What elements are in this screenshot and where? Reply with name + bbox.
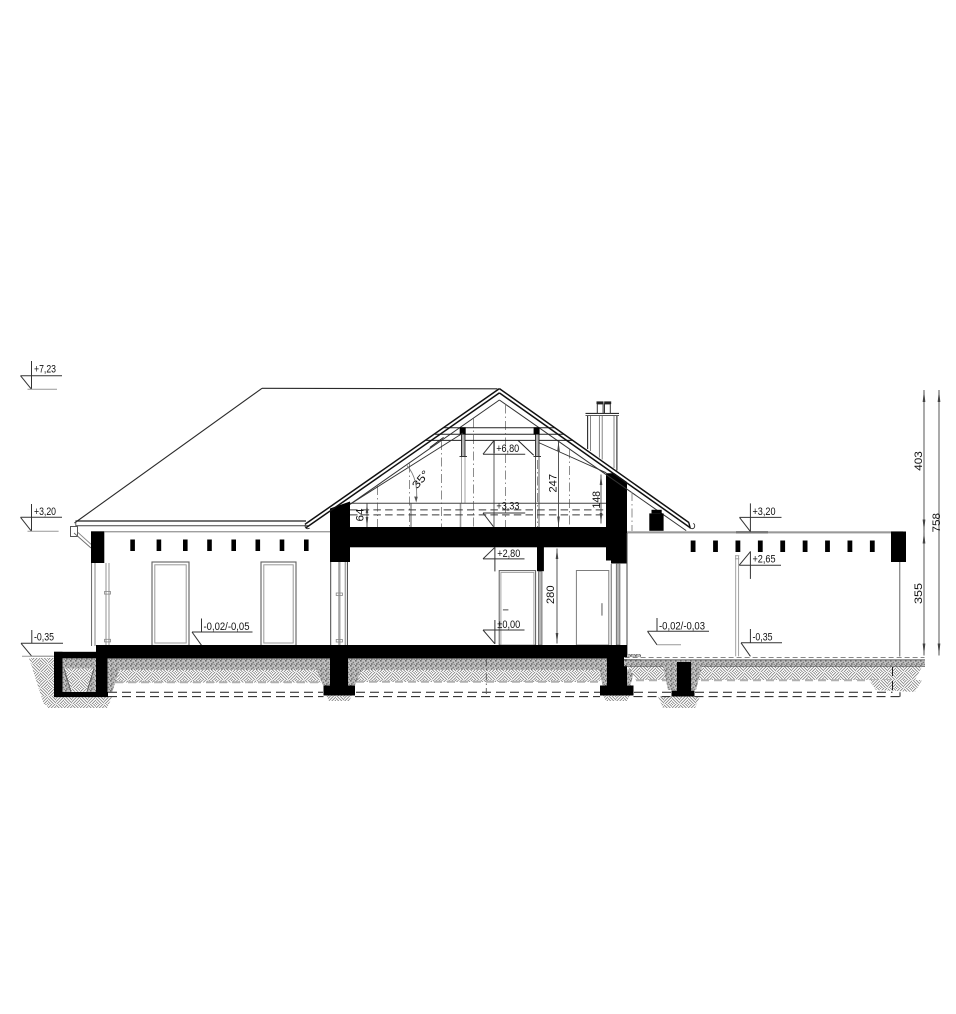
svg-text:403: 403 <box>913 451 925 471</box>
svg-text:148: 148 <box>591 491 603 509</box>
svg-text:+2,80: +2,80 <box>497 548 520 560</box>
svg-text:-0,02/-0,05: -0,02/-0,05 <box>204 621 250 633</box>
svg-text:+6,80: +6,80 <box>496 443 519 455</box>
svg-text:247: 247 <box>548 474 560 493</box>
svg-text:-0,02/-0,03: -0,02/-0,03 <box>659 621 705 633</box>
svg-text:355: 355 <box>913 583 925 604</box>
svg-text:+3,20: +3,20 <box>753 506 776 518</box>
svg-text:-0,35: -0,35 <box>753 632 773 644</box>
svg-text:+3,20: +3,20 <box>34 506 56 518</box>
svg-text:64: 64 <box>355 509 367 522</box>
svg-text:-0,35: -0,35 <box>34 632 54 644</box>
svg-text:+7,23: +7,23 <box>34 364 56 376</box>
svg-text:+2,65: +2,65 <box>753 554 776 566</box>
svg-text:758: 758 <box>931 513 943 533</box>
svg-text:±0,00: ±0,00 <box>497 619 520 631</box>
svg-text:280: 280 <box>545 586 557 605</box>
svg-text:+3,33: +3,33 <box>496 501 519 513</box>
